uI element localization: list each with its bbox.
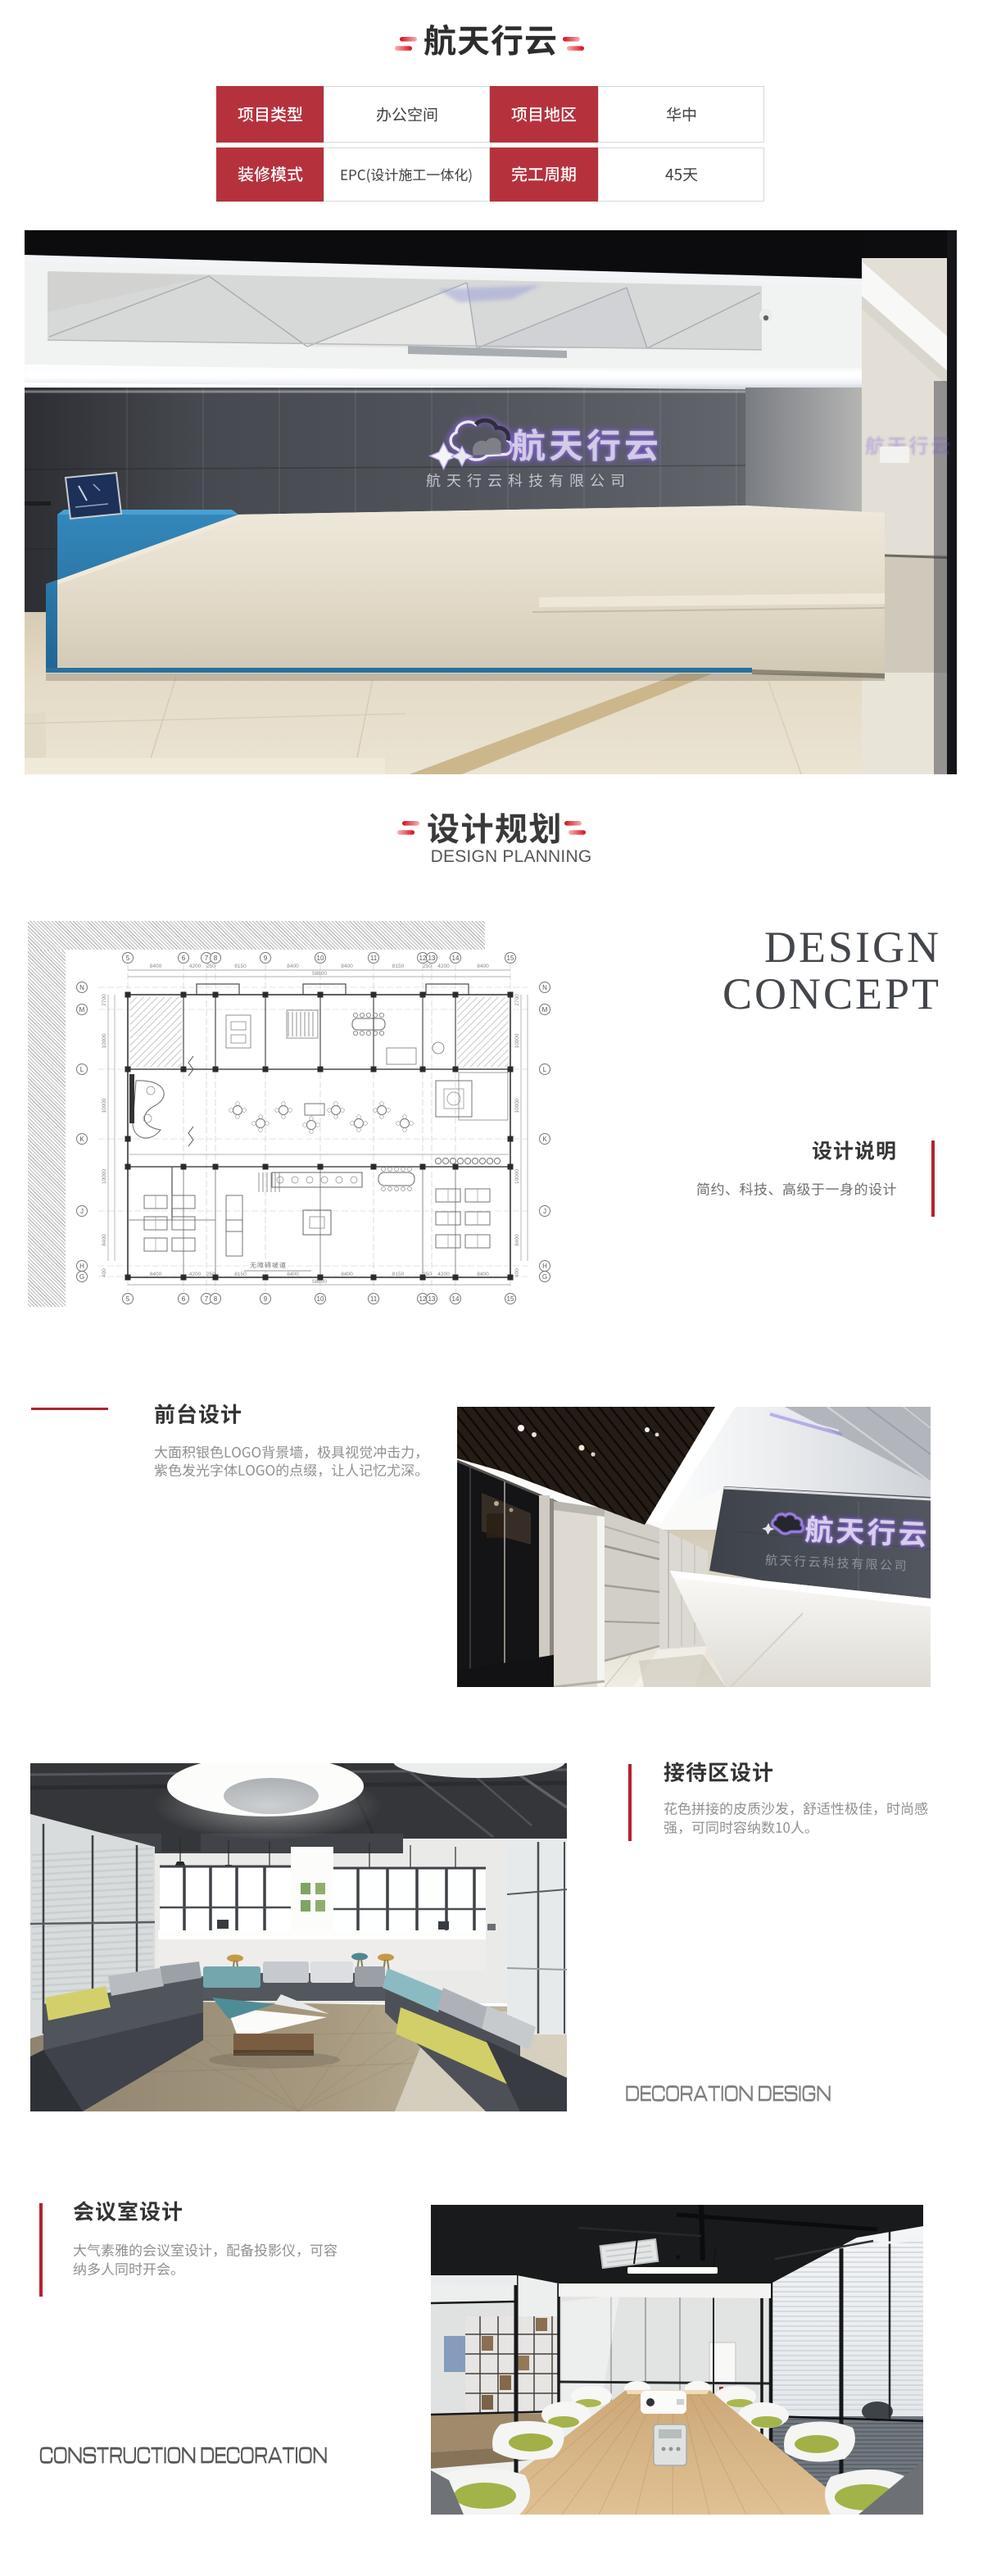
svg-text:10000: 10000 [514, 1033, 520, 1048]
svg-text:G: G [79, 1273, 84, 1281]
svg-text:13: 13 [428, 1295, 436, 1303]
svg-text:G: G [542, 1273, 547, 1281]
svg-text:H: H [542, 1263, 547, 1270]
svg-text:11: 11 [370, 955, 378, 962]
svg-text:10000: 10000 [102, 1033, 107, 1048]
svg-text:5: 5 [126, 955, 130, 962]
svg-text:4200: 4200 [189, 1272, 202, 1277]
svg-text:8400: 8400 [477, 1272, 489, 1277]
svg-text:10000: 10000 [514, 1098, 520, 1113]
svg-text:4200: 4200 [437, 1272, 450, 1277]
svg-text:8150: 8150 [234, 964, 247, 969]
svg-text:400: 400 [514, 1268, 520, 1277]
svg-text:M: M [79, 1006, 85, 1014]
svg-text:8: 8 [214, 955, 218, 962]
svg-text:15: 15 [507, 1295, 514, 1303]
svg-text:10000: 10000 [102, 1098, 107, 1113]
svg-text:6: 6 [182, 955, 186, 962]
svg-text:4200: 4200 [437, 964, 450, 969]
svg-text:8400: 8400 [514, 1234, 520, 1246]
svg-text:8150: 8150 [234, 1272, 247, 1277]
svg-text:250: 250 [206, 964, 215, 969]
svg-text:K: K [542, 1136, 547, 1143]
svg-text:2700: 2700 [514, 994, 520, 1006]
svg-text:8400: 8400 [477, 964, 489, 969]
svg-text:8400: 8400 [341, 1272, 353, 1277]
svg-text:12: 12 [419, 1295, 427, 1303]
svg-text:14: 14 [452, 1295, 460, 1303]
svg-text:8400: 8400 [102, 1234, 107, 1246]
svg-text:10: 10 [317, 955, 324, 962]
svg-text:J: J [543, 1208, 546, 1215]
svg-text:12: 12 [419, 955, 427, 962]
svg-text:L: L [80, 1066, 84, 1073]
svg-text:K: K [79, 1136, 84, 1143]
svg-text:J: J [80, 1208, 84, 1215]
svg-text:15: 15 [507, 955, 514, 962]
svg-text:8400: 8400 [287, 964, 299, 969]
svg-text:8400: 8400 [341, 964, 353, 969]
svg-text:7: 7 [205, 955, 209, 962]
svg-text:L: L [543, 1066, 547, 1073]
svg-text:6: 6 [182, 1295, 186, 1303]
svg-text:8150: 8150 [392, 1272, 405, 1277]
svg-text:11: 11 [370, 1295, 378, 1303]
svg-text:8400: 8400 [150, 964, 162, 969]
svg-text:58800: 58800 [312, 971, 327, 977]
svg-text:H: H [79, 1263, 84, 1270]
svg-text:10: 10 [317, 1295, 324, 1303]
svg-text:14: 14 [452, 955, 460, 962]
svg-text:400: 400 [102, 1268, 107, 1277]
svg-text:2700: 2700 [102, 994, 107, 1006]
svg-text:9: 9 [264, 955, 268, 962]
svg-text:250: 250 [423, 964, 432, 969]
svg-text:N: N [79, 984, 84, 991]
svg-text:10000: 10000 [102, 1169, 107, 1184]
svg-text:8150: 8150 [392, 964, 405, 969]
svg-text:8400: 8400 [150, 1272, 162, 1277]
svg-text:13: 13 [428, 955, 436, 962]
svg-text:9: 9 [264, 1295, 268, 1303]
svg-text:7: 7 [205, 1295, 209, 1303]
svg-text:10000: 10000 [514, 1169, 520, 1184]
svg-text:4200: 4200 [189, 964, 202, 969]
svg-text:8400: 8400 [287, 1272, 299, 1277]
svg-text:8: 8 [214, 1295, 218, 1303]
svg-text:5: 5 [126, 1295, 130, 1303]
